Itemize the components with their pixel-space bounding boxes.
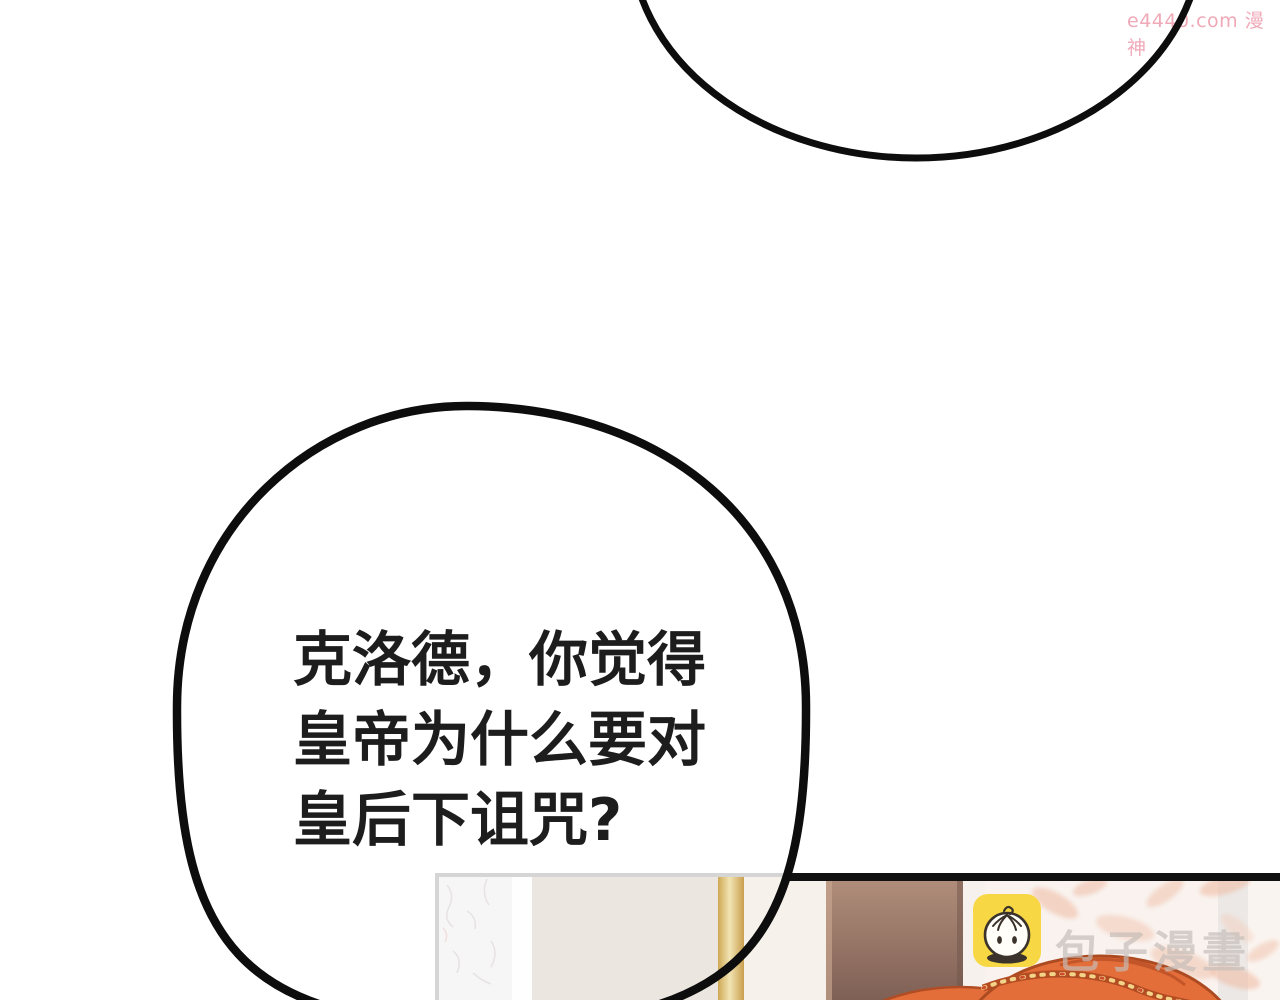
beige-wall bbox=[532, 873, 718, 1000]
comic-page: { "scene": { "type": "webtoon-panel-frag… bbox=[0, 0, 1280, 1000]
site-watermark: e4440.com 漫神 bbox=[1127, 6, 1280, 60]
wall-highlight-strip bbox=[512, 873, 532, 1000]
pillar-edge-light bbox=[826, 873, 832, 1000]
bubble-text-line: 皇帝为什么要对 bbox=[293, 700, 773, 780]
cream-strip bbox=[744, 873, 826, 1000]
bubble-dialogue: 克洛德，你觉得 皇帝为什么要对 皇后下诅咒? bbox=[293, 620, 773, 860]
panel-border-left bbox=[435, 873, 439, 1000]
panel-border-top-gray bbox=[435, 873, 787, 877]
baozi-logo bbox=[973, 894, 1041, 967]
platform-watermark-label: 包子漫畫 bbox=[1055, 916, 1251, 980]
pillar-edge-dark bbox=[957, 873, 963, 1000]
bubble-text-line: 皇后下诅咒? bbox=[293, 780, 773, 860]
panel-border-top-black bbox=[785, 873, 1280, 881]
bubble-text-line: 克洛德，你觉得 bbox=[293, 620, 773, 700]
pillar bbox=[826, 873, 963, 1000]
gold-trim bbox=[718, 873, 744, 1000]
baozi-bun-icon bbox=[973, 894, 1041, 967]
speech-bubble-top bbox=[631, 0, 1201, 158]
